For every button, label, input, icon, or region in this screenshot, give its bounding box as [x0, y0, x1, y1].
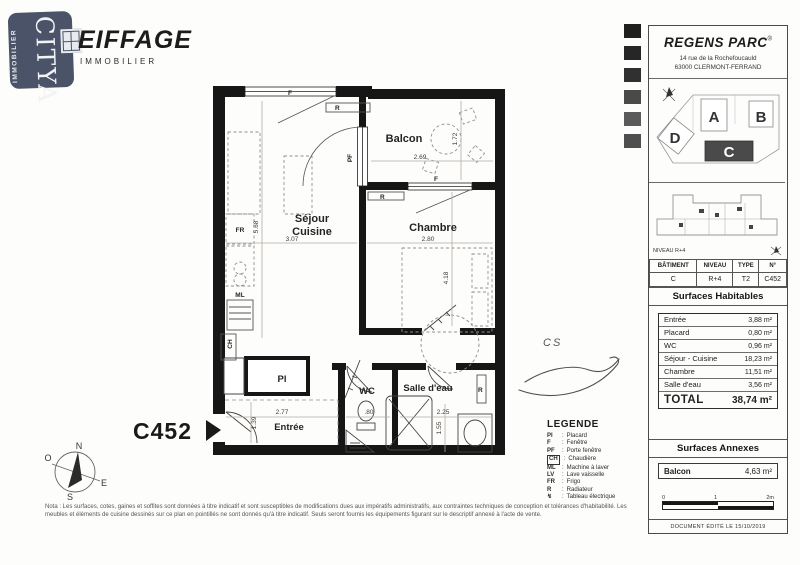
building-a-label: A [709, 109, 720, 126]
sofa [228, 132, 260, 214]
kitchen-counter [226, 246, 254, 286]
bath-fixtures [346, 396, 492, 452]
document-edited-label: DOCUMENT ÉDITÉ LE 15/10/2019 [649, 519, 787, 533]
door-swing-chambre [421, 315, 479, 373]
legend-item: FR:Frigo [547, 479, 647, 486]
bed [402, 248, 492, 332]
dim-sejour-width: 3.07 [286, 236, 299, 243]
mark-radiateur: R [380, 194, 385, 201]
registered-mark: ® [768, 37, 772, 43]
surface-annexe-row: Balcon 4,63 m² [658, 463, 778, 479]
sink-bowl [234, 274, 246, 286]
program-name: REGENS PARC [664, 35, 768, 50]
unit-info-table: BÂTIMENT NIVEAU TYPE N° C R+4 T2 C452 [649, 259, 787, 287]
registration-marks [624, 24, 641, 156]
entrance-arrow-icon [206, 420, 221, 441]
dim-entree-width: 2.77 [276, 409, 289, 416]
info-panel: REGENS PARC® 14 rue de la Rochefoucauld … [648, 25, 788, 534]
building-c-label: C [724, 144, 735, 161]
room-label-wc: WC [359, 386, 375, 397]
surface-row: Chambre11,51 m² [659, 366, 777, 379]
disclaimer-text: Nota : Les surfaces, cotes, gaines et so… [45, 503, 637, 519]
level-caption: NIVEAU R+4 [653, 248, 685, 254]
mark-fenetre: F [288, 90, 292, 97]
signature-initials: CS [543, 337, 562, 349]
balcony-chair [459, 108, 476, 124]
unit-building: C [650, 272, 697, 286]
dim-chambre-width: 2.80 [422, 236, 435, 243]
legend-item: Pl:Placard [547, 433, 647, 440]
radiator [368, 192, 404, 200]
surface-row: WC0,96 m² [659, 340, 777, 353]
sink-bowl [234, 262, 246, 274]
unit-table-header: TYPE [733, 259, 759, 272]
table [284, 156, 312, 214]
dim-sejour-height: 5.68 [253, 220, 260, 233]
legend: LEGENDE Pl:Placard F:Fenêtre PF:Porte fe… [547, 419, 647, 502]
dim-balcon-height: 1.72 [452, 132, 459, 145]
dim-chambre-height: 4.18 [443, 271, 450, 284]
room-label-placard: Pl [278, 374, 287, 385]
room-label-entree: Entrée [274, 422, 304, 433]
mark-radiateur: R [335, 105, 340, 112]
window-opening-lines [278, 96, 470, 213]
legend-item: CH:Chaudière [547, 455, 647, 464]
program-address-2: 63000 CLERMONT-FERRAND [651, 64, 785, 73]
compass-south: S [67, 492, 73, 502]
surfaces-habitables-title: Surfaces Habitables [649, 287, 787, 306]
legend-item: LV:Lave vaisselle [547, 472, 647, 479]
unit-number-label: C452 [133, 418, 192, 444]
surfaces-habitables-table: Entrée3,88 m² Placard0,80 m² WC0,96 m² S… [658, 313, 778, 409]
pillow [472, 254, 488, 288]
building-d-label: D [670, 130, 681, 147]
compass-north: N [76, 441, 83, 451]
program-address-1: 14 rue de la Rochefoucauld [651, 55, 785, 64]
mini-compass-icon [769, 245, 783, 257]
surface-row: Séjour - Cuisine18,23 m² [659, 353, 777, 366]
unit-table-header: NIVEAU [697, 259, 733, 272]
unit-level: R+4 [697, 272, 733, 286]
surface-row: Entrée3,88 m² [659, 314, 777, 327]
compass-rose: N O E S [44, 441, 107, 502]
mark-machine-a-laver: ML [235, 292, 244, 299]
mark-chaudiere: CH [227, 339, 234, 349]
panel-bottom: Surfaces Annexes Balcon 4,63 m² 0 1 2m D… [649, 439, 787, 533]
signature: CS [519, 337, 619, 395]
dim-balcon-width: 2.69 [414, 154, 427, 161]
surface-total-row: TOTAL38,74 m² [659, 392, 777, 408]
surfaces-annexes-title: Surfaces Annexes [649, 439, 787, 458]
pillow [472, 292, 488, 326]
room-label-chambre: Chambre [409, 222, 457, 234]
unit-table-header: N° [759, 259, 787, 272]
program-header: REGENS PARC® 14 rue de la Rochefoucauld … [649, 26, 787, 79]
dim-salle-eau-width: 2.25 [437, 409, 450, 416]
mark-radiateur: R [478, 387, 483, 394]
legend-item: R:Radiateur [547, 487, 647, 494]
windows [245, 87, 472, 190]
placard-small-box [224, 358, 244, 394]
site-plan: A B D C [649, 79, 785, 183]
surface-row: Placard0,80 m² [659, 327, 777, 340]
legend-item: ML:Machine à laver [547, 465, 647, 472]
room-label-salle-eau: Salle d'eau [403, 383, 452, 394]
mark-porte-fenetre: PF [347, 154, 354, 162]
mark-frigo: FR [236, 227, 245, 234]
unit-type: T2 [733, 272, 759, 286]
dim-entree-height: 1.39 [251, 416, 258, 429]
compass-west: O [44, 453, 51, 463]
dim-salle-eau-height: 1.55 [436, 421, 443, 434]
legend-item: ↯:Tableau électrique [547, 494, 647, 501]
mark-fenetre: F [434, 176, 438, 183]
electric-panel-icon: ↯ [547, 494, 561, 501]
legend-item: F:Fenêtre [547, 440, 647, 447]
building-b-label: B [756, 109, 767, 126]
legend-item: PF:Porte fenêtre [547, 448, 647, 455]
compass-east: E [101, 478, 107, 488]
washing-machine [227, 300, 253, 330]
level-key-plan [649, 183, 785, 245]
room-label-sejour-1: Séjour [295, 213, 330, 225]
site-compass-icon [663, 87, 675, 101]
balcony-chair [468, 146, 485, 163]
dim-wc-width: .80 [364, 409, 373, 416]
room-label-balcon: Balcon [386, 133, 423, 145]
legend-title: LEGENDE [547, 419, 647, 430]
floor-plan-document: IMMOBILIER CITYA EIFFAGE IMMOBILIER [0, 0, 800, 565]
surface-row: Salle d'eau3,56 m² [659, 379, 777, 392]
unit-table-header: BÂTIMENT [650, 259, 697, 272]
unit-number: C452 [759, 272, 787, 286]
scale-bar: 0 1 2m [662, 495, 774, 510]
